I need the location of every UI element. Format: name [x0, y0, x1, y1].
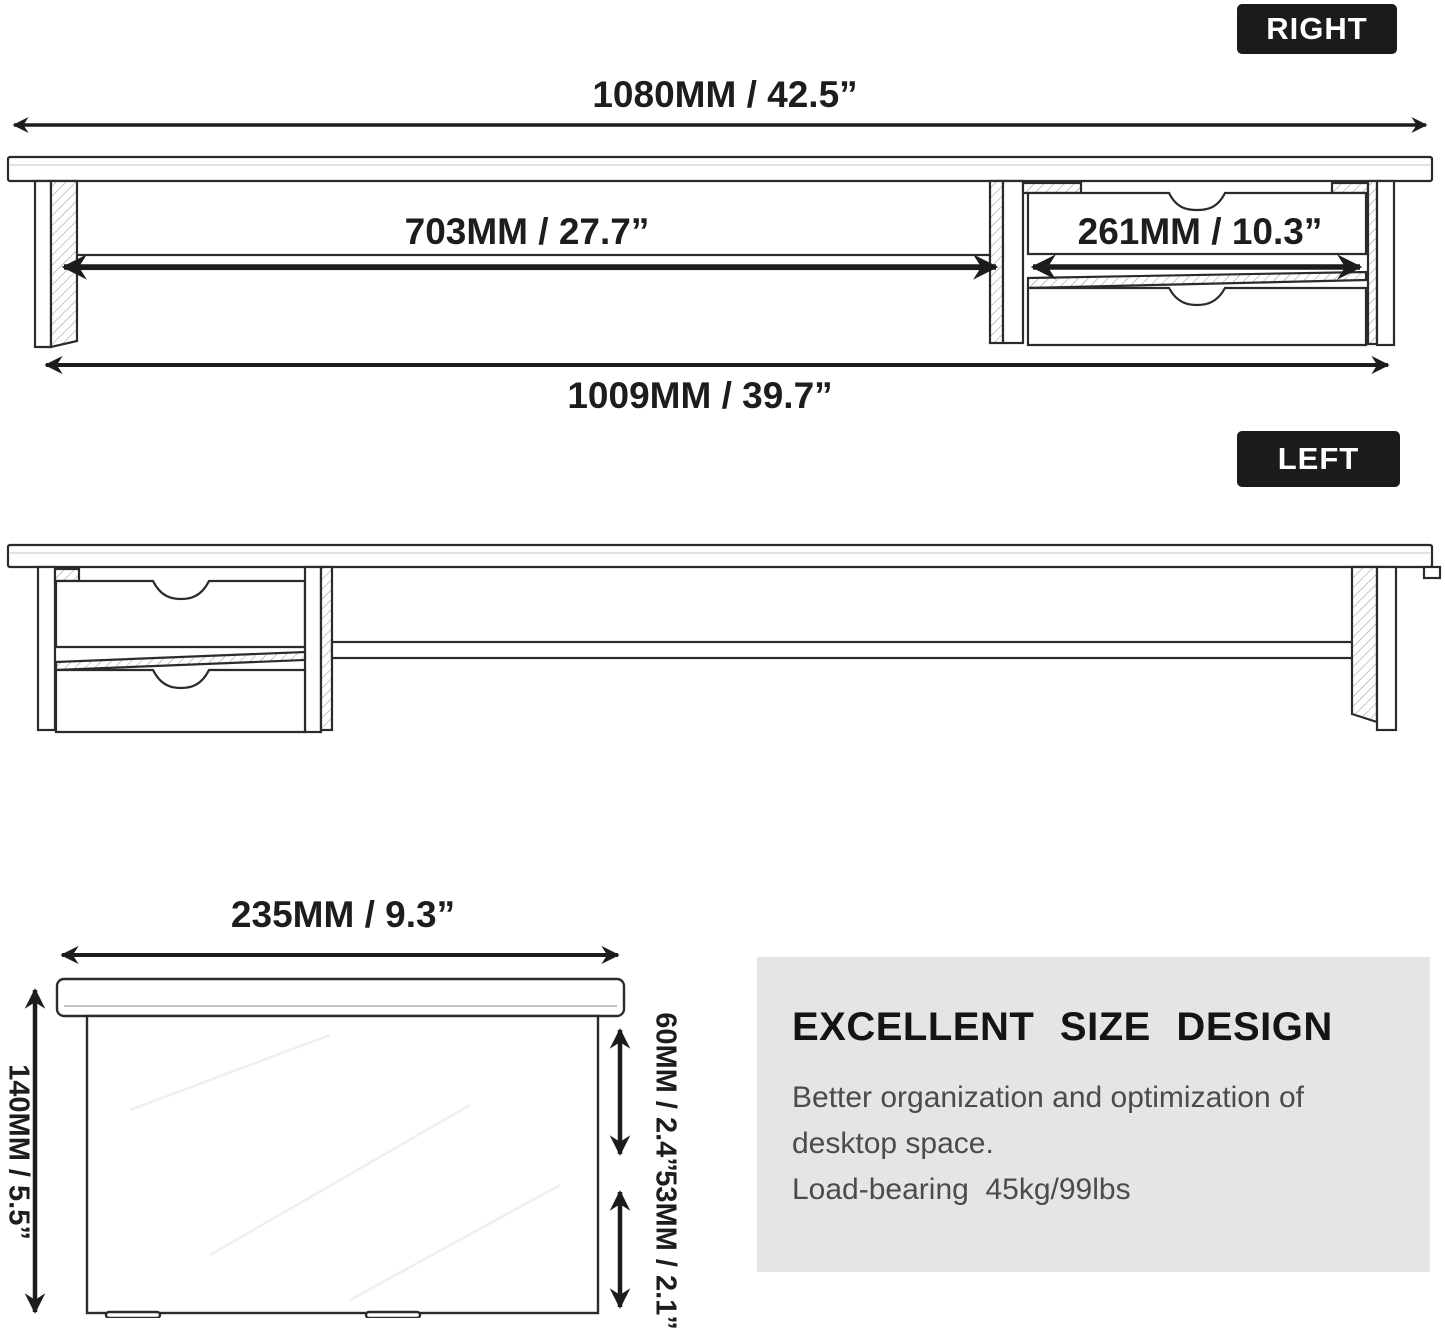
dim-label-1009: 1009MM / 39.7” [567, 375, 832, 417]
dim-label-140: 140MM / 5.5” [2, 1064, 35, 1240]
right-leg [1377, 181, 1394, 345]
info-panel-heading: EXCELLENT SIZE DESIGN [792, 1005, 1333, 1050]
top-shelf-surface [8, 157, 1432, 181]
dim-label-261: 261MM / 10.3” [1078, 211, 1323, 253]
info-line-1: Better organization and optimization of [792, 1075, 1304, 1121]
dim-label-1080: 1080MM / 42.5” [592, 74, 857, 116]
badge-left: LEFT [1237, 431, 1400, 487]
info-line-2: desktop space. [792, 1121, 1304, 1167]
badge-right: RIGHT [1237, 4, 1397, 54]
top-shelf-surface [8, 545, 1432, 567]
right-leg [1377, 567, 1396, 730]
middle-leg [305, 567, 321, 732]
foot-pad [366, 1312, 420, 1318]
middle-leg [1003, 181, 1023, 343]
dim-label-703: 703MM / 27.7” [405, 211, 650, 253]
side-body [87, 1016, 598, 1313]
dim-label-60: 60MM / 2.4” [649, 1012, 682, 1172]
product-dimension-infographic: RIGHT LEFT 1080MM / 42.5” 703MM / 27.7” … [0, 0, 1445, 1318]
side-top-surface [57, 979, 624, 1016]
left-leg [38, 567, 55, 730]
info-panel: EXCELLENT SIZE DESIGN Better organizatio… [757, 957, 1430, 1272]
lower-drawer [56, 670, 305, 732]
info-line-3: Load-bearing 45kg/99lbs [792, 1167, 1304, 1213]
lower-drawer [1028, 288, 1366, 345]
left-leg [35, 181, 51, 347]
upper-drawer [56, 581, 305, 647]
info-panel-body: Better organization and optimization of … [792, 1075, 1304, 1213]
dim-label-53: 53MM / 2.1” [649, 1170, 682, 1330]
middle-shelf [332, 642, 1377, 658]
foot-pad [106, 1312, 160, 1318]
dim-label-235: 235MM / 9.3” [231, 894, 455, 936]
left-config-diagram [8, 545, 1440, 732]
side-view-diagram [57, 979, 624, 1318]
